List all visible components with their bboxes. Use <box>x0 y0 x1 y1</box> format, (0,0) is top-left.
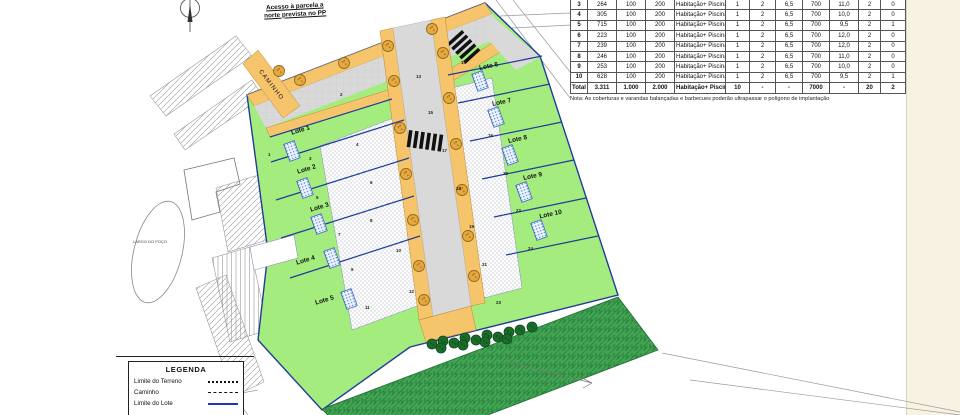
corner-marker: 15 <box>428 110 434 115</box>
table-cell: 2.000 <box>646 83 675 93</box>
table-cell: 2 <box>750 72 776 82</box>
table-cell: 6,5 <box>776 0 803 10</box>
tree-icon <box>419 295 430 306</box>
place-label: LARGO DO POÇO <box>133 239 167 244</box>
legend-box: LEGENDA Limite do TerrenoCaminhoLimite d… <box>128 361 244 415</box>
table-cell: 20 <box>859 83 881 93</box>
legend-item: Limite do Terreno <box>134 376 238 387</box>
legend-line-sample <box>208 381 238 383</box>
drawing-sheet: CAMINHO <box>0 0 960 415</box>
table-cell: 200 <box>646 31 675 41</box>
bush-icon <box>515 325 525 335</box>
table-cell: 6,5 <box>776 62 803 72</box>
table-cell: 6 <box>571 31 588 41</box>
table-cell: 239 <box>588 41 617 51</box>
table-cell: Habitação+ Piscina <box>675 0 726 10</box>
table-cell: 715 <box>588 20 617 30</box>
corner-marker: 22 <box>516 208 522 213</box>
table-cell: 1 <box>726 10 750 20</box>
table-cell: 7 <box>571 41 588 51</box>
table-cell: 6,5 <box>776 10 803 20</box>
table-row: 8246100200Habitação+ Piscina126,570011,0… <box>571 51 906 61</box>
table-cell: 100 <box>617 0 646 10</box>
table-cell: 305 <box>588 10 617 20</box>
table-cell: 2 <box>750 41 776 51</box>
tree-icon <box>408 215 419 226</box>
tree-icon <box>274 66 285 77</box>
table-cell: Habitação+ Piscina <box>675 31 726 41</box>
table-cell: 100 <box>617 41 646 51</box>
tree-icon <box>383 41 394 52</box>
tree-icon <box>444 93 455 104</box>
table-cell: Habitação+ Piscina <box>675 83 726 93</box>
table-cell: 2 <box>859 10 881 20</box>
tree-icon <box>401 169 412 180</box>
table-cell: 0 <box>881 62 906 72</box>
corner-marker: 12 <box>409 289 415 294</box>
corner-marker: 23 <box>496 300 502 305</box>
table-cell: - <box>830 83 859 93</box>
bush-icon <box>471 335 481 345</box>
table-cell: - <box>776 83 803 93</box>
corner-marker: 10 <box>396 248 402 253</box>
table-cell: 6,5 <box>776 51 803 61</box>
table-cell: 100 <box>617 51 646 61</box>
table-row: 10628100200Habitação+ Piscina126,57009,5… <box>571 72 906 82</box>
tree-icon <box>469 271 480 282</box>
table-cell: 2 <box>881 83 906 93</box>
table-cell: 4 <box>571 10 588 20</box>
corner-marker: 20 <box>503 171 509 176</box>
table-cell: 2 <box>750 51 776 61</box>
table-cell: 2 <box>859 31 881 41</box>
legend-item-label: Limite do Terreno <box>134 378 182 385</box>
tree-icon <box>395 123 406 134</box>
bush-icon <box>436 343 446 353</box>
table-cell: 0 <box>881 10 906 20</box>
table-cell: 9 <box>571 62 588 72</box>
table-cell: 10 <box>571 72 588 82</box>
table-cell: 628 <box>588 72 617 82</box>
table-cell: 6,5 <box>776 41 803 51</box>
tree-icon <box>389 76 400 87</box>
bush-icon <box>493 332 503 342</box>
table-cell: 5 <box>571 20 588 30</box>
table-cell: 9,5 <box>830 20 859 30</box>
table-cell: 6,5 <box>776 31 803 41</box>
bush-icon <box>502 334 512 344</box>
table-cell: 100 <box>617 62 646 72</box>
table-cell: 1 <box>726 72 750 82</box>
corner-marker: 14 <box>461 60 467 65</box>
tree-icon <box>427 24 438 35</box>
table-cell: 0 <box>881 51 906 61</box>
table-cell: 2 <box>859 72 881 82</box>
table-cell: Habitação+ Piscina <box>675 62 726 72</box>
table-cell: 246 <box>588 51 617 61</box>
table-row: 4305100200Habitação+ Piscina126,570010,0… <box>571 10 906 20</box>
tree-icon <box>438 48 449 59</box>
tree-icon <box>414 261 425 272</box>
table-cell: 700 <box>803 62 830 72</box>
table-cell: 1 <box>726 62 750 72</box>
table-cell: 2 <box>750 62 776 72</box>
corner-marker: 17 <box>442 148 448 153</box>
table-row: 3264100200Habitação+ Piscina126,570011,0… <box>571 0 906 10</box>
table-cell: 200 <box>646 0 675 10</box>
table-cell: 12,0 <box>830 31 859 41</box>
table-cell: 200 <box>646 62 675 72</box>
table-cell: 10 <box>726 83 750 93</box>
table-cell: 2 <box>859 62 881 72</box>
table-cell: 2 <box>859 41 881 51</box>
table-cell: 11,0 <box>830 0 859 10</box>
table-cell: 0 <box>881 0 906 10</box>
legend-topline <box>116 356 254 357</box>
legend-line-sample <box>208 392 238 393</box>
table-cell: 2 <box>750 31 776 41</box>
table-cell: 3 <box>571 0 588 10</box>
table-cell: 2 <box>859 20 881 30</box>
table-row: 9253100200Habitação+ Piscina126,570010,0… <box>571 62 906 72</box>
table-cell: Habitação+ Piscina <box>675 20 726 30</box>
legend-item: Caminho <box>134 387 238 398</box>
table-cell: 8 <box>571 51 588 61</box>
table-note: Nota: As coberturas e varandas balançada… <box>570 96 910 102</box>
table-cell: 264 <box>588 0 617 10</box>
table-cell: 2 <box>859 51 881 61</box>
corner-marker: 11 <box>365 305 370 310</box>
table-row: 7239100200Habitação+ Piscina126,570012,0… <box>571 41 906 51</box>
table-cell: 100 <box>617 20 646 30</box>
table-row: 6223100200Habitação+ Piscina126,570012,0… <box>571 31 906 41</box>
bush-icon <box>449 338 459 348</box>
table-cell: 1 <box>726 31 750 41</box>
bush-icon <box>480 337 490 347</box>
table-cell: 200 <box>646 41 675 51</box>
table-cell: 1 <box>726 20 750 30</box>
bush-icon <box>458 340 468 350</box>
north-arrow-icon <box>181 0 200 32</box>
tree-icon <box>463 231 474 242</box>
table-cell: 700 <box>803 31 830 41</box>
table-cell: 1 <box>881 72 906 82</box>
table-cell: 1 <box>726 51 750 61</box>
table-cell: 100 <box>617 10 646 20</box>
table-cell: 10,0 <box>830 62 859 72</box>
legend-item: Limite do Lote <box>134 398 238 409</box>
table-cell: 200 <box>646 20 675 30</box>
table-cell: 700 <box>803 10 830 20</box>
legend-line-sample <box>208 403 238 405</box>
table-cell: 253 <box>588 62 617 72</box>
table-cell: Habitação+ Piscina <box>675 72 726 82</box>
table-cell: 1.000 <box>617 83 646 93</box>
table-cell: 7000 <box>803 83 830 93</box>
table-row: Total3.3111.0002.000Habitação+ Piscina10… <box>571 83 906 93</box>
table-cell: 700 <box>803 20 830 30</box>
table-cell: - <box>750 83 776 93</box>
table-cell: 100 <box>617 72 646 82</box>
table-cell: 700 <box>803 0 830 10</box>
legend-item-label: Limite do Lote <box>134 400 173 407</box>
corner-marker: 21 <box>482 262 488 267</box>
table-cell: 2 <box>750 10 776 20</box>
table-cell: Habitação+ Piscina <box>675 10 726 20</box>
corner-marker: 18 <box>456 186 462 191</box>
lots-table: 3264100200Habitação+ Piscina126,570011,0… <box>570 0 906 94</box>
table-cell: 1 <box>726 0 750 10</box>
table-cell: 3.311 <box>588 83 617 93</box>
table-cell: 223 <box>588 31 617 41</box>
corner-marker: 24 <box>528 246 534 251</box>
table-cell: 1 <box>881 20 906 30</box>
table-cell: Habitação+ Piscina <box>675 41 726 51</box>
table-cell: 700 <box>803 51 830 61</box>
table-cell: 200 <box>646 72 675 82</box>
corner-marker: 19 <box>469 224 475 229</box>
table-cell: 0 <box>881 41 906 51</box>
table-cell: 11,0 <box>830 51 859 61</box>
table-cell: 700 <box>803 41 830 51</box>
table-cell: 200 <box>646 10 675 20</box>
bush-icon <box>427 339 437 349</box>
table-cell: 2 <box>859 0 881 10</box>
table-cell: 200 <box>646 51 675 61</box>
table-cell: 0 <box>881 31 906 41</box>
table-cell: Total <box>571 83 588 93</box>
table-cell: 10,0 <box>830 10 859 20</box>
bush-icon <box>527 322 537 332</box>
table-cell: 12,0 <box>830 41 859 51</box>
table-cell: 2 <box>750 0 776 10</box>
table-cell: 6,5 <box>776 20 803 30</box>
tree-icon <box>295 75 306 86</box>
tree-icon <box>451 139 462 150</box>
table-cell: 1 <box>726 41 750 51</box>
legend-item-label: Caminho <box>134 389 159 396</box>
table-cell: 700 <box>803 72 830 82</box>
table-cell: 9,5 <box>830 72 859 82</box>
table-cell: Habitação+ Piscina <box>675 51 726 61</box>
corner-marker: 16 <box>488 133 494 138</box>
table-cell: 100 <box>617 31 646 41</box>
table-cell: 6,5 <box>776 72 803 82</box>
table-cell: 2 <box>750 20 776 30</box>
legend-title: LEGENDA <box>134 365 238 374</box>
table-row: 5715100200Habitação+ Piscina126,57009,52… <box>571 20 906 30</box>
tree-icon <box>339 58 350 69</box>
corner-marker: 13 <box>416 74 422 79</box>
